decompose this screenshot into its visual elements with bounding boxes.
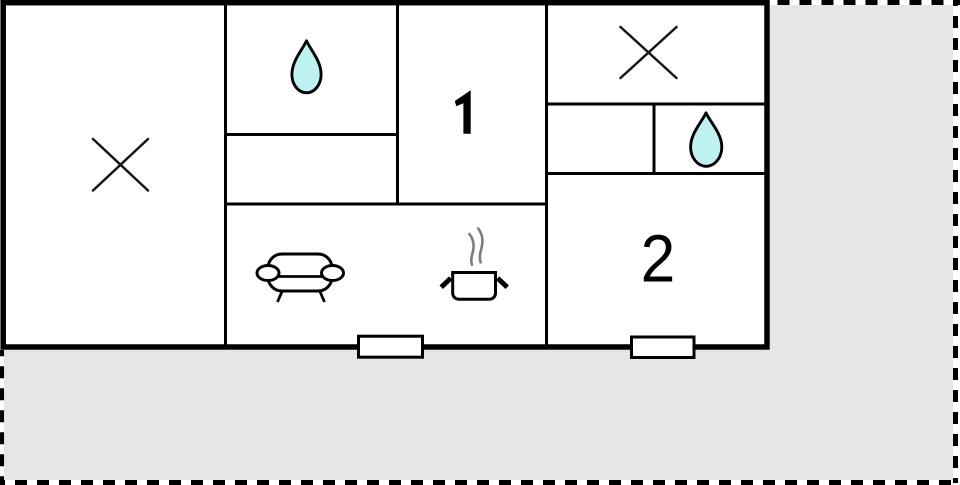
svg-text:2: 2 [641,220,676,296]
